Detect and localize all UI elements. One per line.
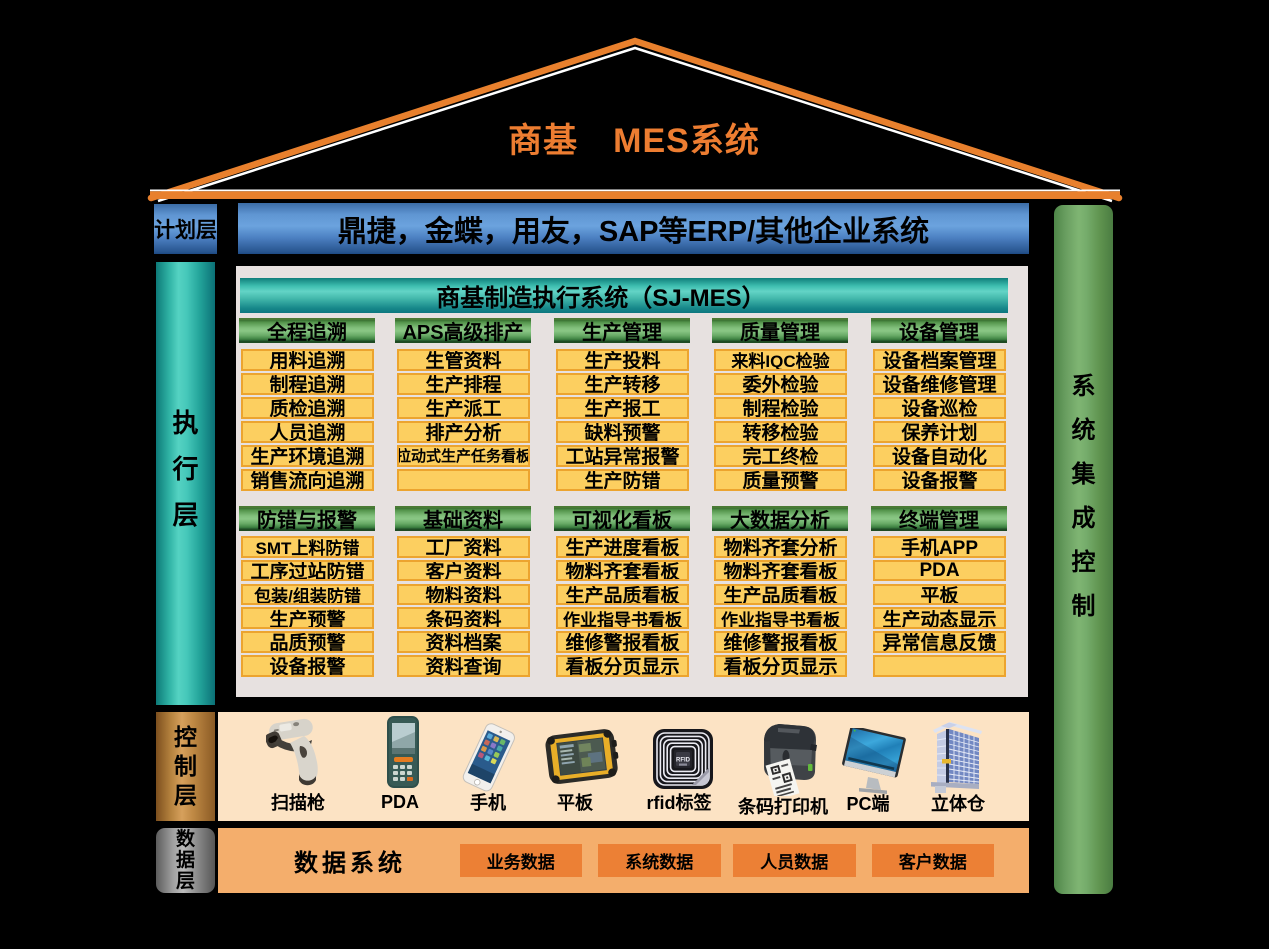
svg-text:RFID: RFID bbox=[676, 758, 691, 764]
